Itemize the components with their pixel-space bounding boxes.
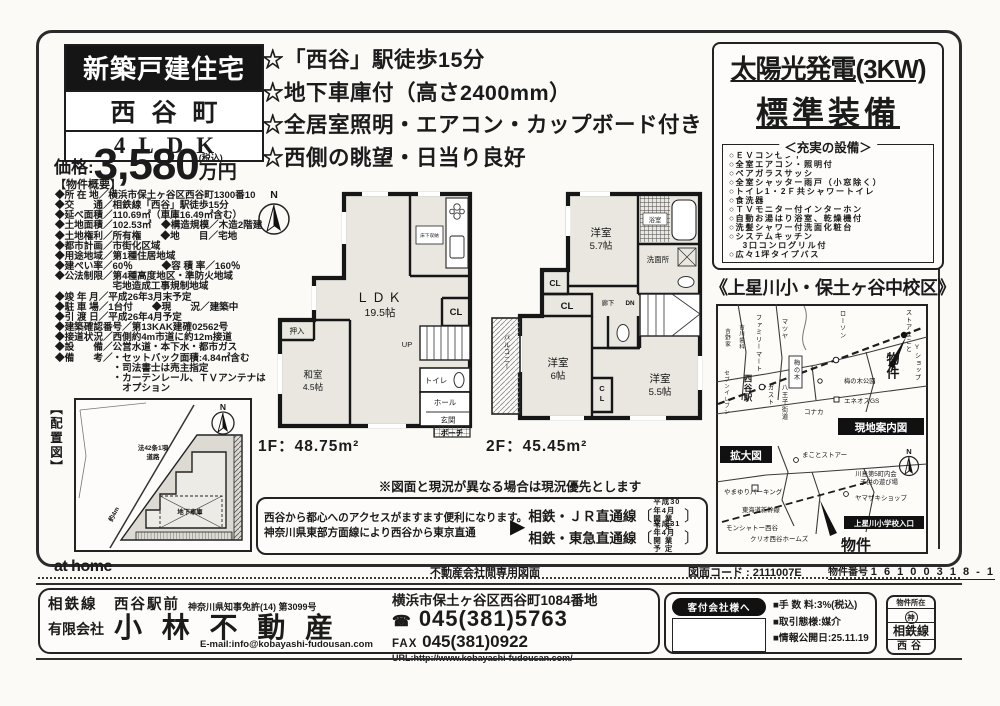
equipment-heading: ＜充実の設備＞ [779,137,877,156]
compass-n-label: N [906,447,911,456]
compass-n-label: N [270,189,278,201]
flyer-page: 新築戸建住宅 西谷町 4LDK 価格: 3,580 (税込) 万円 【物件概要】… [0,0,1000,706]
town-name: 西谷町 [66,90,262,130]
stamp-title: 物件所在 [888,597,934,609]
property-marker-label: 物件 [841,536,871,554]
map-label: ストアまこと [905,309,912,353]
access-info-box: 西谷から都心へのアクセスがますます便利になります。 神奈川県東部方面線により西谷… [256,497,708,555]
equipment-item: ○全室シャッター雨戸（小窓除く） [729,178,929,187]
school-district: 《上星川小・保土ヶ谷中校区》 [710,274,964,300]
senmen-label: 洗面所 [647,254,670,264]
publish-date-line: ■情報公開日:25.11.19 [773,631,869,648]
closet-label: CL [598,384,607,404]
stamp-prefecture: 神 [888,609,934,623]
porch-label: ポーチ [441,428,464,438]
equipment-item: ○自動お湯はり浴室、乾燥機付 [729,214,929,223]
highlight-item: ☆「西谷」駅徒歩15分 [262,44,714,77]
balcony-label: バルコニー [503,334,510,371]
map-label: エネオスGS [844,397,880,405]
equipment-item: ○食洗器 [729,196,929,205]
site-road-label-2: 道路 [147,452,161,461]
stamp-blank-area [672,618,766,652]
underfloor-storage-label: 床下収納 [420,232,439,239]
highlight-item: ☆地下車庫付（高さ2400mm） [262,77,714,110]
map-label: コナカ [804,408,824,416]
solar-box: 太陽光発電(3KW) 標準装備 ＜充実の設備＞ ○ＥＶコンセント ○全室エアコン… [712,42,944,270]
closet-label: CL [549,278,560,288]
toilet-label: トイレ [425,376,448,385]
stamp-station-name: 西谷 [888,640,934,654]
kyakutsuke-label: 客付会社様へ [672,598,766,616]
compass-1f: N [259,189,289,234]
area-map: ストアまこと ローソン マツヤ ファミリーマート 吉川歯科 吉野家 梅の木 梅の… [716,304,928,554]
map-label: 梅の木公園 [844,376,875,385]
bracket-open: 〔 [636,527,653,548]
access-line1: 西谷から都心へのアクセスがますます便利になります。 [264,511,507,526]
equipment-item: ○ＴＶモニター付インターホン [729,205,929,214]
solar-title: 太陽光発電(3KW) [714,49,942,86]
site-plan-label: 【配置図】 [46,402,65,475]
map-label: 川島第5町内会 [855,469,897,478]
stairs-up-label: UP [402,340,412,349]
highlight-item: ☆全居室照明・エアコン・カップボード付き [262,109,714,142]
map-label: クリオ西谷ホームズ [750,534,809,543]
dotted-divider [38,577,960,579]
stamp-line-name: 相鉄線 [888,623,934,640]
map-label: ガスト [767,384,774,406]
outline-line: オプション [55,384,267,394]
map-label: 吉野家 [724,328,731,348]
site-plan-drawing: 法42条1項 道路 地下車庫 約4m N [74,398,252,552]
company-name: 小 林 不 動 産 [114,614,339,642]
agency-phone: ☎ 045(381)5763 [392,608,658,633]
room3-size: 5.5帖 [649,386,672,398]
map-label: セブンイレブン [723,370,730,416]
equipment-item: 3口コンログリル付 [729,241,929,250]
phone-number: 045(381)5763 [419,606,568,631]
phone-icon: ☎ [392,613,412,630]
route-tokyu-note1: 平成31年4月 [653,520,683,537]
room3-label: 洋室 [650,372,671,385]
route-jr-note1: 平成30年4月 [653,498,683,515]
route-tokyu: 相鉄・東急直通線 〔 平成31年4月 開 業 予 定 〕 [528,526,700,548]
washitsu-label: 和室 [303,369,322,381]
hall-label: ホール [434,398,457,407]
fax-number: 045(381)0922 [422,632,528,651]
floor-plan-2f: バルコニー 浴室 洗面所 洋室 5.7帖 CL CL 廊下 DN [480,186,708,438]
map-label: まことストアー [802,451,847,459]
floor-plan-1f: N 床下収納 CL UP [250,186,480,438]
map-label: Yショップ [914,344,921,381]
compass-n-label: N [220,402,226,412]
map-label: マツヤ [781,318,788,340]
map-enlarge-label: 拡大図 [730,449,762,462]
site-garage-label: 地下車庫 [177,507,203,516]
oshiire-label: 押入 [290,326,305,336]
map-label: やまゆりパーキング [724,487,783,496]
arrow-icon: ▶ [507,514,528,539]
map-guide-label: 現地案内図 [855,421,908,434]
highlight-list: ☆「西谷」駅徒歩15分 ☆地下車庫付（高さ2400mm） ☆全居室照明・エアコン… [262,44,714,174]
washitsu-size: 4.5帖 [303,382,324,392]
map-label-school-gate: 上星川小学校入口 [854,518,914,528]
ldk-label: ＬＤＫ [356,290,404,305]
room1-size: 5.7帖 [590,240,613,252]
site-road-label-1: 法42条1項 [138,443,169,452]
agency-fax: FAX 045(381)0922 [392,633,658,653]
route-jr-name: 相鉄・ＪＲ直通線 [528,505,636,525]
athome-logo: at home [54,558,112,576]
map-label: 東海道新幹線 [742,505,780,514]
map-label: ヤマザキショップ [855,494,908,502]
map-label: ファミリーマート [755,314,762,373]
entrance-label: 玄関 [441,415,456,425]
room1-label: 洋室 [591,226,612,239]
map-label: 八王子街道 [781,384,788,421]
agency-station: 相鉄線 西谷駅前 [48,593,180,614]
equipment-item: ○トイレ1・2Ｆ共シャワートイレ [729,187,929,196]
divider [36,658,962,660]
map-label: 吉川歯科 [738,324,745,351]
agency-box: 相鉄線 西谷駅前 神奈川県知事免許(14) 第3099号 有限会社 小 林 不 … [38,588,660,654]
ldk-size: 19.5帖 [365,306,396,319]
divider [36,583,962,585]
agency-email: E-mail:info@kobayashi-fudousan.com [200,639,373,650]
equipment-item: ○システムキッチン [729,232,929,241]
route-tokyu-name: 相鉄・東急直通線 [528,527,636,547]
bracket-close: 〕 [683,527,700,548]
stairs-dn-label: DN [625,300,635,307]
highlight-item: ☆西側の眺望・日当り良好 [262,142,714,175]
closet-label: CL [450,307,463,318]
bath-label: 浴室 [649,215,662,224]
equipment-item: ○全室エアコン・照明付 [729,160,929,169]
corridor-label: 廊下 [602,298,615,307]
map-label: 梅の木 [793,358,800,382]
map-label: ローソン [839,310,846,339]
fee-line: ■手 数 料:3%(税込) [773,598,869,615]
map-label-station: 西谷駅 [743,374,753,403]
equipment-item: ○ペアガラスサッシ [729,169,929,178]
route-tokyu-note2: 開 業 予 定 [653,537,683,554]
broker-terms-box: 客付会社様へ ■手 数 料:3%(税込) ■取引態様:媒介 ■情報公開日:25.… [664,592,877,654]
floor1-area: 1F：48.75m² [258,434,359,456]
property-type-badge: 新築戸建住宅 [66,46,262,90]
room2-label: 洋室 [548,356,569,369]
equipment-item: ○広々1坪タイプバス [729,250,929,259]
company-prefix: 有限会社 [48,619,104,642]
bracket-open: 〔 [636,505,653,526]
access-routes: 相鉄・ＪＲ直通線 〔 平成30年4月 開 業 予 定 〕 相鉄・東急直通線 〔 … [528,504,700,548]
property-marker-label: 物件 [885,351,900,380]
transaction-type-line: ■取引態様:媒介 [773,615,869,632]
access-line2: 神奈川県東部方面線により西谷から東京直通 [264,526,507,541]
map-label: モンシャトー西谷 [726,523,779,532]
outline-line: ◆設 備／公営水道・本下水・都市ガス [55,343,267,353]
fax-label: FAX [392,638,417,650]
equipment-item: ○洗髪シャワー付洗面化粧台 [729,223,929,232]
map-label: 子供の遊び場 [860,477,898,486]
closet-label: CL [561,301,574,312]
floor2-area: 2F：45.45m² [486,434,587,456]
room2-size: 6帖 [551,370,566,382]
bracket-close: 〕 [683,505,700,526]
location-stamp-box: 物件所在 神 相鉄線 西谷 [886,595,936,655]
property-outline: 【物件概要】 ◆所 在 地／横浜市保土ヶ谷区西谷町1300番10 ◆交 通／相鉄… [55,179,267,394]
access-text: 西谷から都心へのアクセスがますます便利になります。 神奈川県東部方面線により西谷… [264,511,507,541]
equipment-box: ＜充実の設備＞ ○ＥＶコンセント ○全室エアコン・照明付 ○ペアガラスサッシ ○… [722,144,934,263]
solar-subtitle: 標準装備 [714,88,942,134]
plan-disclaimer: ※図面と現況が異なる場合は現況優先とします [330,476,690,495]
